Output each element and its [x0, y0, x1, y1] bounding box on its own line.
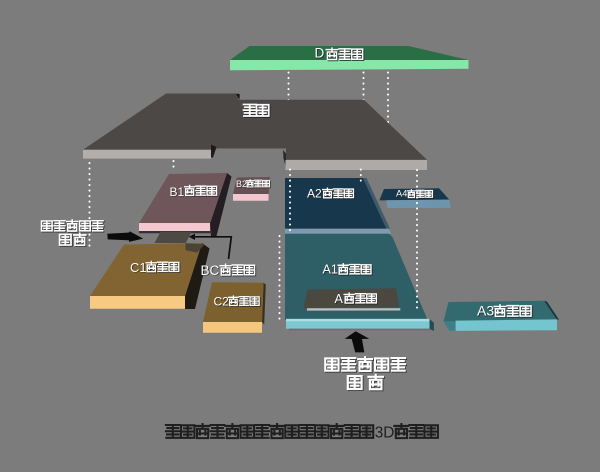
- svg-text:A1: A1: [323, 263, 338, 277]
- svg-text:B1: B1: [170, 185, 185, 199]
- svg-text:A: A: [335, 292, 344, 306]
- svg-text:A3: A3: [477, 302, 494, 318]
- svg-text:A2: A2: [307, 187, 322, 201]
- svg-text:BC: BC: [201, 263, 220, 278]
- svg-text:C1: C1: [130, 260, 147, 275]
- svg-text:B2: B2: [236, 179, 247, 189]
- svg-text:3D: 3D: [375, 424, 395, 441]
- svg-text:C2: C2: [214, 295, 230, 309]
- svg-text:A4: A4: [396, 189, 407, 199]
- svg-text:D: D: [315, 46, 325, 61]
